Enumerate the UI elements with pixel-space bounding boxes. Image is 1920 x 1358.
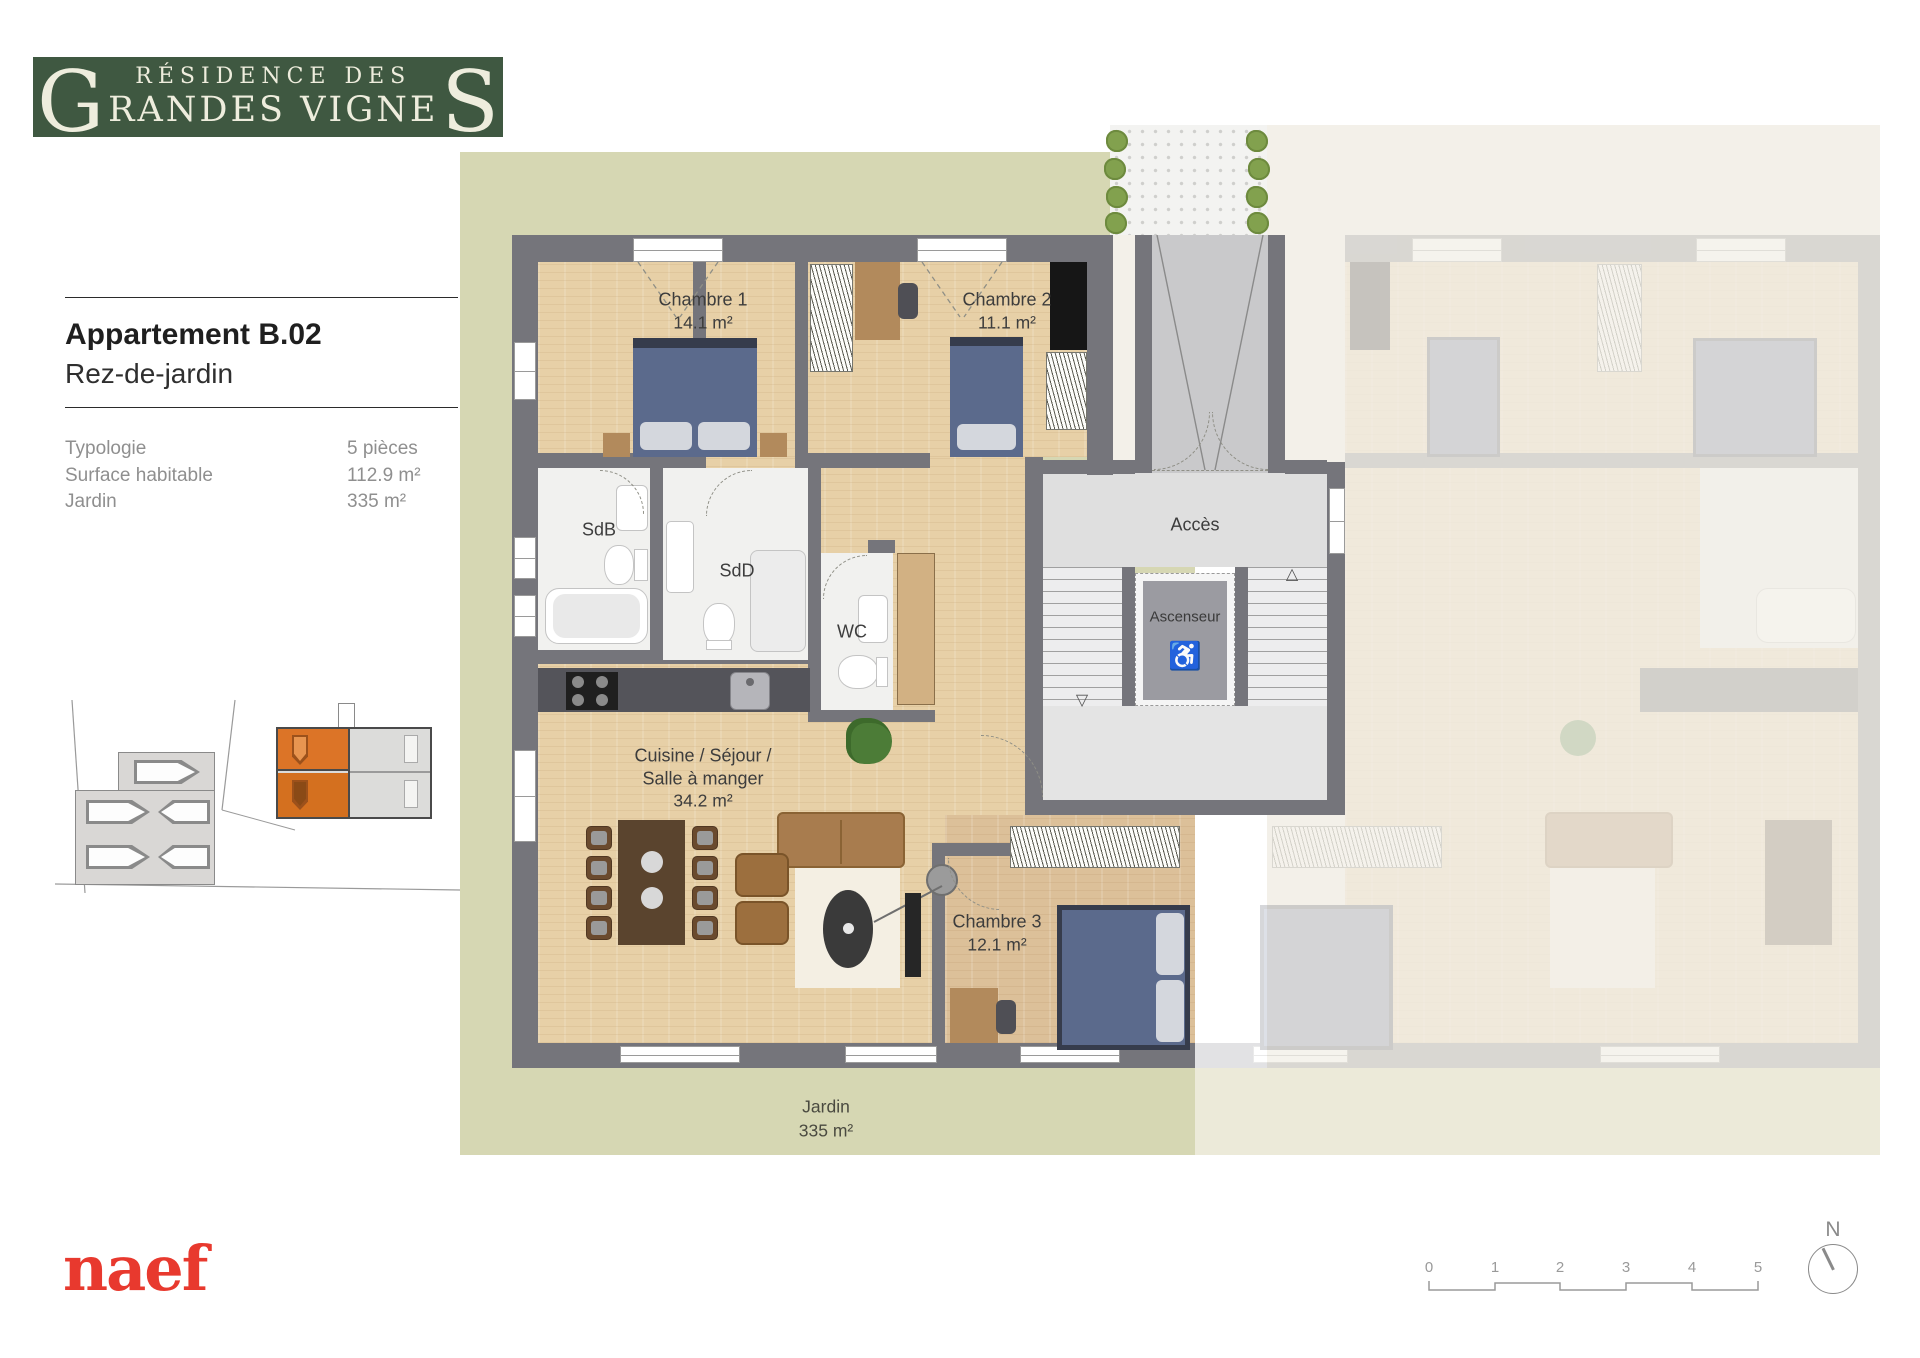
- east-wall: [1087, 235, 1113, 475]
- burner: [572, 694, 584, 706]
- spec-label-typologie: Typologie: [65, 438, 146, 460]
- room-label-sdb: SdB: [582, 520, 616, 541]
- scale-tick-2: 2: [1556, 1259, 1564, 1276]
- room-label-wc: WC: [837, 622, 867, 643]
- bathtub-inner: [553, 594, 640, 638]
- room-label-chambre1: Chambre 1: [658, 290, 747, 311]
- dining-chair: [586, 916, 612, 940]
- garden-area-label: 335 m²: [799, 1121, 853, 1142]
- window: [514, 595, 536, 637]
- room-area-cuisine: 34.2 m²: [673, 791, 732, 812]
- window: [1329, 488, 1345, 554]
- dining-chair: [692, 856, 718, 880]
- room-area-chambre3: 12.1 m²: [967, 935, 1026, 956]
- scale-tick-5: 5: [1754, 1259, 1762, 1276]
- pillow: [957, 424, 1016, 450]
- pillow: [1156, 913, 1184, 975]
- dining-chair: [692, 826, 718, 850]
- site-building-b-split: [348, 729, 350, 817]
- ramp-wall: [1268, 235, 1285, 473]
- wall: [795, 453, 930, 468]
- wheelchair-icon: ♿: [1168, 640, 1202, 672]
- sofa-cushion-line: [840, 820, 842, 864]
- logo-big-g: G: [37, 72, 104, 132]
- kitchen-sink-drain: [746, 678, 754, 686]
- burner: [572, 676, 584, 688]
- logo-line1: RÉSIDENCE DES: [135, 64, 411, 89]
- window: [633, 238, 723, 262]
- spec-value-jardin: 335 m²: [347, 491, 406, 513]
- brochure-page: Accès Ascenseur ♿ ▽ △: [0, 0, 1920, 1358]
- entry-door-line: [1152, 470, 1268, 471]
- ramp-wall: [1135, 235, 1152, 473]
- room-label-acces: Accès: [1170, 515, 1219, 536]
- toilet: [838, 655, 878, 689]
- scale-tick-3: 3: [1622, 1259, 1630, 1276]
- room-label-chambre2: Chambre 2: [962, 290, 1051, 311]
- scale-tick-4: 4: [1688, 1259, 1696, 1276]
- technical-shaft: [1050, 262, 1087, 350]
- pillow: [698, 422, 750, 450]
- site-door-white: [404, 780, 418, 808]
- room-area-chambre2: 11.1 m²: [978, 313, 1036, 334]
- dining-chair: [586, 826, 612, 850]
- scale-tick-1: 1: [1491, 1259, 1499, 1276]
- elevator-shaft-wall: [1122, 567, 1135, 706]
- armchair: [735, 901, 789, 945]
- toilet: [703, 603, 735, 645]
- north-label: N: [1825, 1218, 1840, 1242]
- toilet-tank: [876, 657, 888, 687]
- spec-label-jardin: Jardin: [65, 491, 117, 513]
- logo-big-s: S: [441, 72, 499, 132]
- apartment-subtitle: Rez-de-jardin: [65, 358, 233, 390]
- shower: [750, 550, 806, 652]
- scale-tick-0: 0: [1425, 1259, 1433, 1276]
- coffee-table-dot: [843, 923, 854, 934]
- desk-chair: [996, 1000, 1016, 1034]
- window: [620, 1046, 740, 1063]
- room-label-chambre3: Chambre 3: [952, 912, 1041, 933]
- wc-cabinet: [897, 553, 935, 705]
- spec-label-surface: Surface habitable: [65, 465, 213, 487]
- desk: [950, 988, 998, 1043]
- stair-up-icon: △: [1286, 564, 1298, 584]
- room-label-cuisine-1: Cuisine / Séjour /: [634, 746, 771, 767]
- room-label-ascenseur: Ascenseur: [1150, 609, 1221, 626]
- core-wall: [1025, 800, 1345, 815]
- site-door-white: [404, 735, 418, 763]
- window: [514, 537, 536, 579]
- plate: [641, 887, 663, 909]
- plant-icon: [846, 718, 892, 764]
- armchair: [735, 853, 789, 897]
- desk-chair: [898, 283, 918, 319]
- staircase-right: [1248, 567, 1327, 706]
- site-unit-b02-highlight: [278, 729, 348, 771]
- plate: [641, 851, 663, 873]
- sink: [666, 521, 694, 593]
- nightstand: [760, 433, 787, 457]
- core-wall: [1285, 460, 1327, 474]
- desk: [855, 262, 900, 340]
- window: [514, 342, 536, 400]
- toilet-tank: [634, 549, 648, 581]
- logo-line2: RANDES VIGNE: [108, 90, 438, 130]
- tv: [905, 893, 921, 977]
- window: [845, 1046, 937, 1063]
- room-area-chambre1: 14.1 m²: [673, 313, 732, 334]
- staircase-left: [1043, 567, 1122, 706]
- room-label-sdd: SdD: [719, 561, 754, 582]
- north-wall: [512, 235, 1113, 262]
- stair-down-icon: ▽: [1076, 690, 1088, 710]
- site-building-b-split: [350, 771, 430, 773]
- room-label-cuisine-2: Salle à manger: [642, 769, 763, 790]
- garden-label: Jardin: [802, 1097, 850, 1118]
- burner: [596, 676, 608, 688]
- dining-chair: [692, 886, 718, 910]
- wardrobe: [1010, 826, 1180, 868]
- toilet-tank: [706, 640, 732, 650]
- site-chimney: [338, 703, 355, 729]
- apartment-title: Appartement B.02: [65, 318, 322, 352]
- wall: [795, 262, 808, 453]
- wall: [868, 540, 895, 553]
- elevator-shaft-wall: [1235, 567, 1248, 706]
- pillow: [640, 422, 692, 450]
- panel-divider: [65, 297, 458, 298]
- panel-divider: [65, 407, 458, 408]
- window: [917, 238, 1007, 262]
- site-unit-b02-highlight: [278, 773, 348, 817]
- stair-landing: [1043, 706, 1327, 800]
- dining-chair: [586, 856, 612, 880]
- dining-chair: [586, 886, 612, 910]
- wall: [650, 468, 663, 650]
- wardrobe: [810, 264, 853, 372]
- scale-bar: [1420, 1278, 1770, 1300]
- naef-logo: naef: [63, 1238, 206, 1300]
- dining-table: [618, 820, 685, 945]
- window: [514, 750, 536, 842]
- spec-value-typologie: 5 pièces: [347, 438, 418, 460]
- wardrobe: [1046, 352, 1087, 430]
- toilet: [604, 545, 634, 585]
- spec-value-surface: 112.9 m²: [347, 465, 421, 487]
- burner: [596, 694, 608, 706]
- pillow: [1156, 980, 1184, 1042]
- dining-chair: [692, 916, 718, 940]
- nightstand: [603, 433, 630, 457]
- residence-logo: G RÉSIDENCE DES RANDES VIGNE S: [33, 57, 503, 137]
